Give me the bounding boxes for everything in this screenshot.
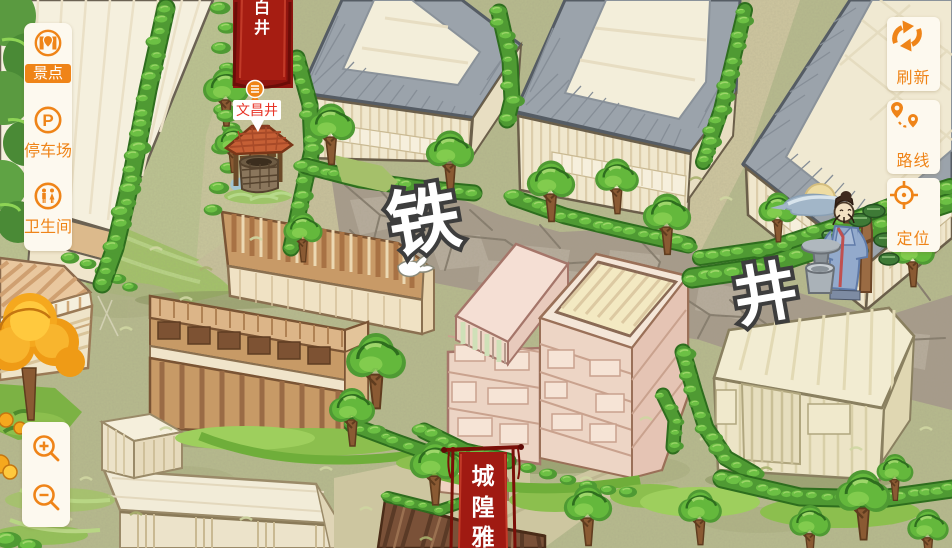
svg-text:白: 白 <box>254 0 270 17</box>
svg-text:井: 井 <box>728 253 804 335</box>
svg-text:雅: 雅 <box>472 525 495 548</box>
svg-text:文昌井: 文昌井 <box>236 102 278 118</box>
svg-text:P: P <box>42 111 53 130</box>
svg-text:城: 城 <box>472 463 495 489</box>
svg-text:铁: 铁 <box>382 176 467 267</box>
svg-text:井: 井 <box>254 18 270 37</box>
svg-text:隍: 隍 <box>472 495 495 520</box>
